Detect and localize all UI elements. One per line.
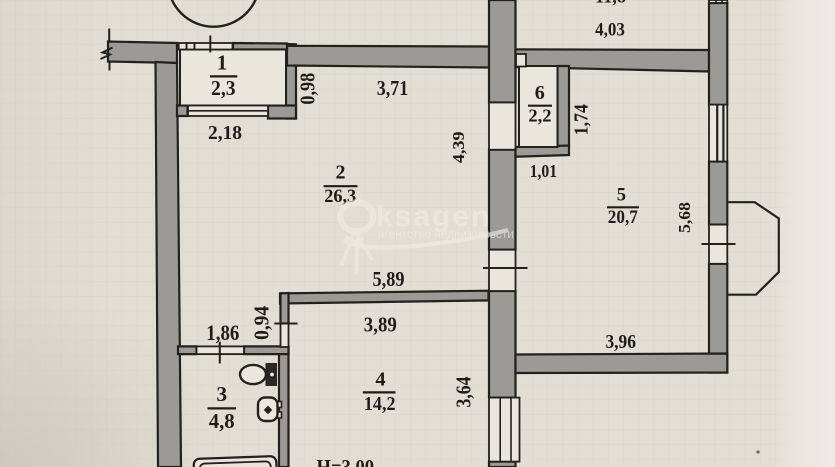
svg-text:20,7: 20,7 [608,208,638,228]
svg-text:2: 2 [336,162,346,184]
svg-text:Н=3,00: Н=3,00 [317,455,375,467]
svg-text:1: 1 [217,51,228,75]
svg-text:3,89: 3,89 [364,313,397,337]
svg-text:агентство недвижимости: агентство недвижимости [378,227,514,241]
svg-text:5: 5 [617,186,626,206]
svg-text:0,98: 0,98 [296,73,320,105]
svg-text:1,86: 1,86 [206,320,239,345]
svg-text:3,96: 3,96 [605,331,636,353]
svg-text:3,64: 3,64 [452,376,476,407]
svg-text:2,3: 2,3 [211,76,236,100]
svg-text:3,71: 3,71 [377,76,409,100]
svg-text:0,94: 0,94 [249,305,273,339]
svg-text:11,8: 11,8 [595,0,626,7]
svg-text:2,2: 2,2 [528,106,551,126]
svg-text:14,2: 14,2 [364,394,396,415]
svg-text:5,89: 5,89 [373,267,405,291]
svg-text:3: 3 [216,382,227,406]
svg-text:1,74: 1,74 [571,104,593,135]
svg-text:2,18: 2,18 [208,122,242,144]
svg-text:1,01: 1,01 [530,161,557,181]
svg-text:6: 6 [535,82,545,104]
svg-text:5,68: 5,68 [675,202,694,233]
svg-text:4: 4 [375,369,385,391]
svg-text:4,03: 4,03 [595,21,625,41]
svg-text:4,8: 4,8 [209,409,235,433]
svg-text:4,39: 4,39 [449,131,468,163]
